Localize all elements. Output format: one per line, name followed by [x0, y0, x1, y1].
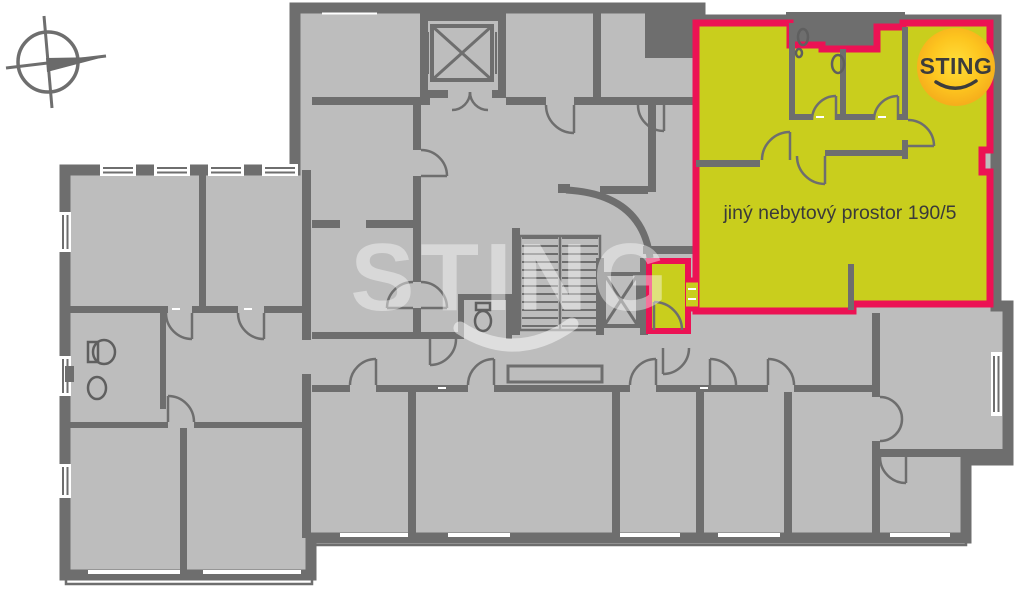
floor-plan-canvas: jiný nebytový prostor 190/5 STING STING — [0, 0, 1024, 594]
window-sill — [448, 533, 510, 537]
window-sill — [718, 533, 780, 537]
window-sill — [620, 533, 680, 537]
window-sill — [340, 533, 410, 537]
window-sill — [88, 570, 186, 574]
window — [59, 212, 71, 252]
window-sill — [890, 533, 950, 537]
window — [208, 164, 244, 176]
floor-plan-image: jiný nebytový prostor 190/5 STING STING — [0, 0, 1024, 594]
sting-watermark: STING — [350, 224, 673, 345]
window — [991, 352, 1002, 416]
watermark-text: STING — [350, 224, 673, 331]
window — [154, 164, 190, 176]
compass-rose-icon — [6, 16, 106, 108]
window — [100, 164, 136, 176]
window — [59, 464, 71, 498]
unit-annex-passage — [686, 280, 698, 310]
compass-needle — [46, 57, 104, 72]
sting-logo: STING — [917, 28, 995, 106]
window — [262, 164, 298, 176]
window-sill — [203, 570, 301, 574]
unit-label: jiný nebytový prostor 190/5 — [722, 202, 956, 224]
logo-text: STING — [920, 53, 993, 79]
